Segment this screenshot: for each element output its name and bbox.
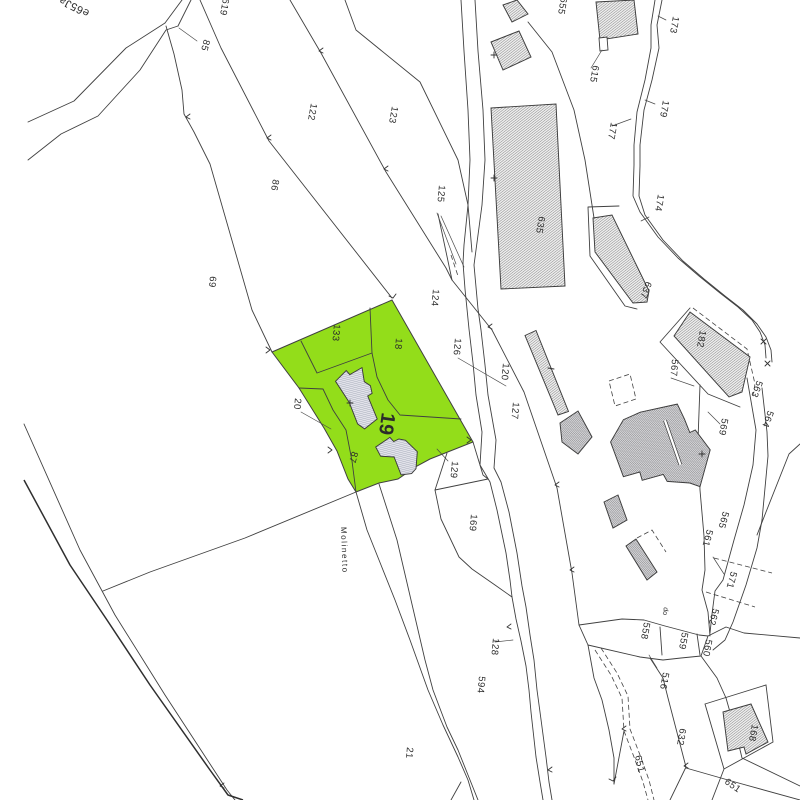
svg-text:128: 128 (488, 638, 500, 656)
svg-text:655: 655 (555, 0, 569, 15)
svg-text:69: 69 (206, 276, 218, 288)
svg-text:133: 133 (329, 324, 341, 342)
svg-text:126: 126 (450, 338, 462, 356)
svg-text:125: 125 (434, 185, 446, 203)
svg-text:86: 86 (268, 178, 281, 191)
svg-text:do: do (661, 607, 669, 616)
svg-text:124: 124 (428, 289, 440, 307)
svg-text:129: 129 (447, 461, 459, 479)
svg-text:18: 18 (392, 338, 404, 350)
svg-text:127: 127 (508, 402, 520, 420)
svg-text:594: 594 (474, 676, 486, 694)
svg-text:567: 567 (667, 359, 679, 377)
svg-text:169: 169 (466, 514, 478, 532)
svg-text:19: 19 (374, 411, 399, 436)
svg-text:21: 21 (403, 747, 415, 759)
svg-text:20: 20 (291, 398, 303, 410)
svg-text:120: 120 (498, 363, 510, 381)
svg-text:Molinetto: Molinetto (339, 527, 350, 574)
